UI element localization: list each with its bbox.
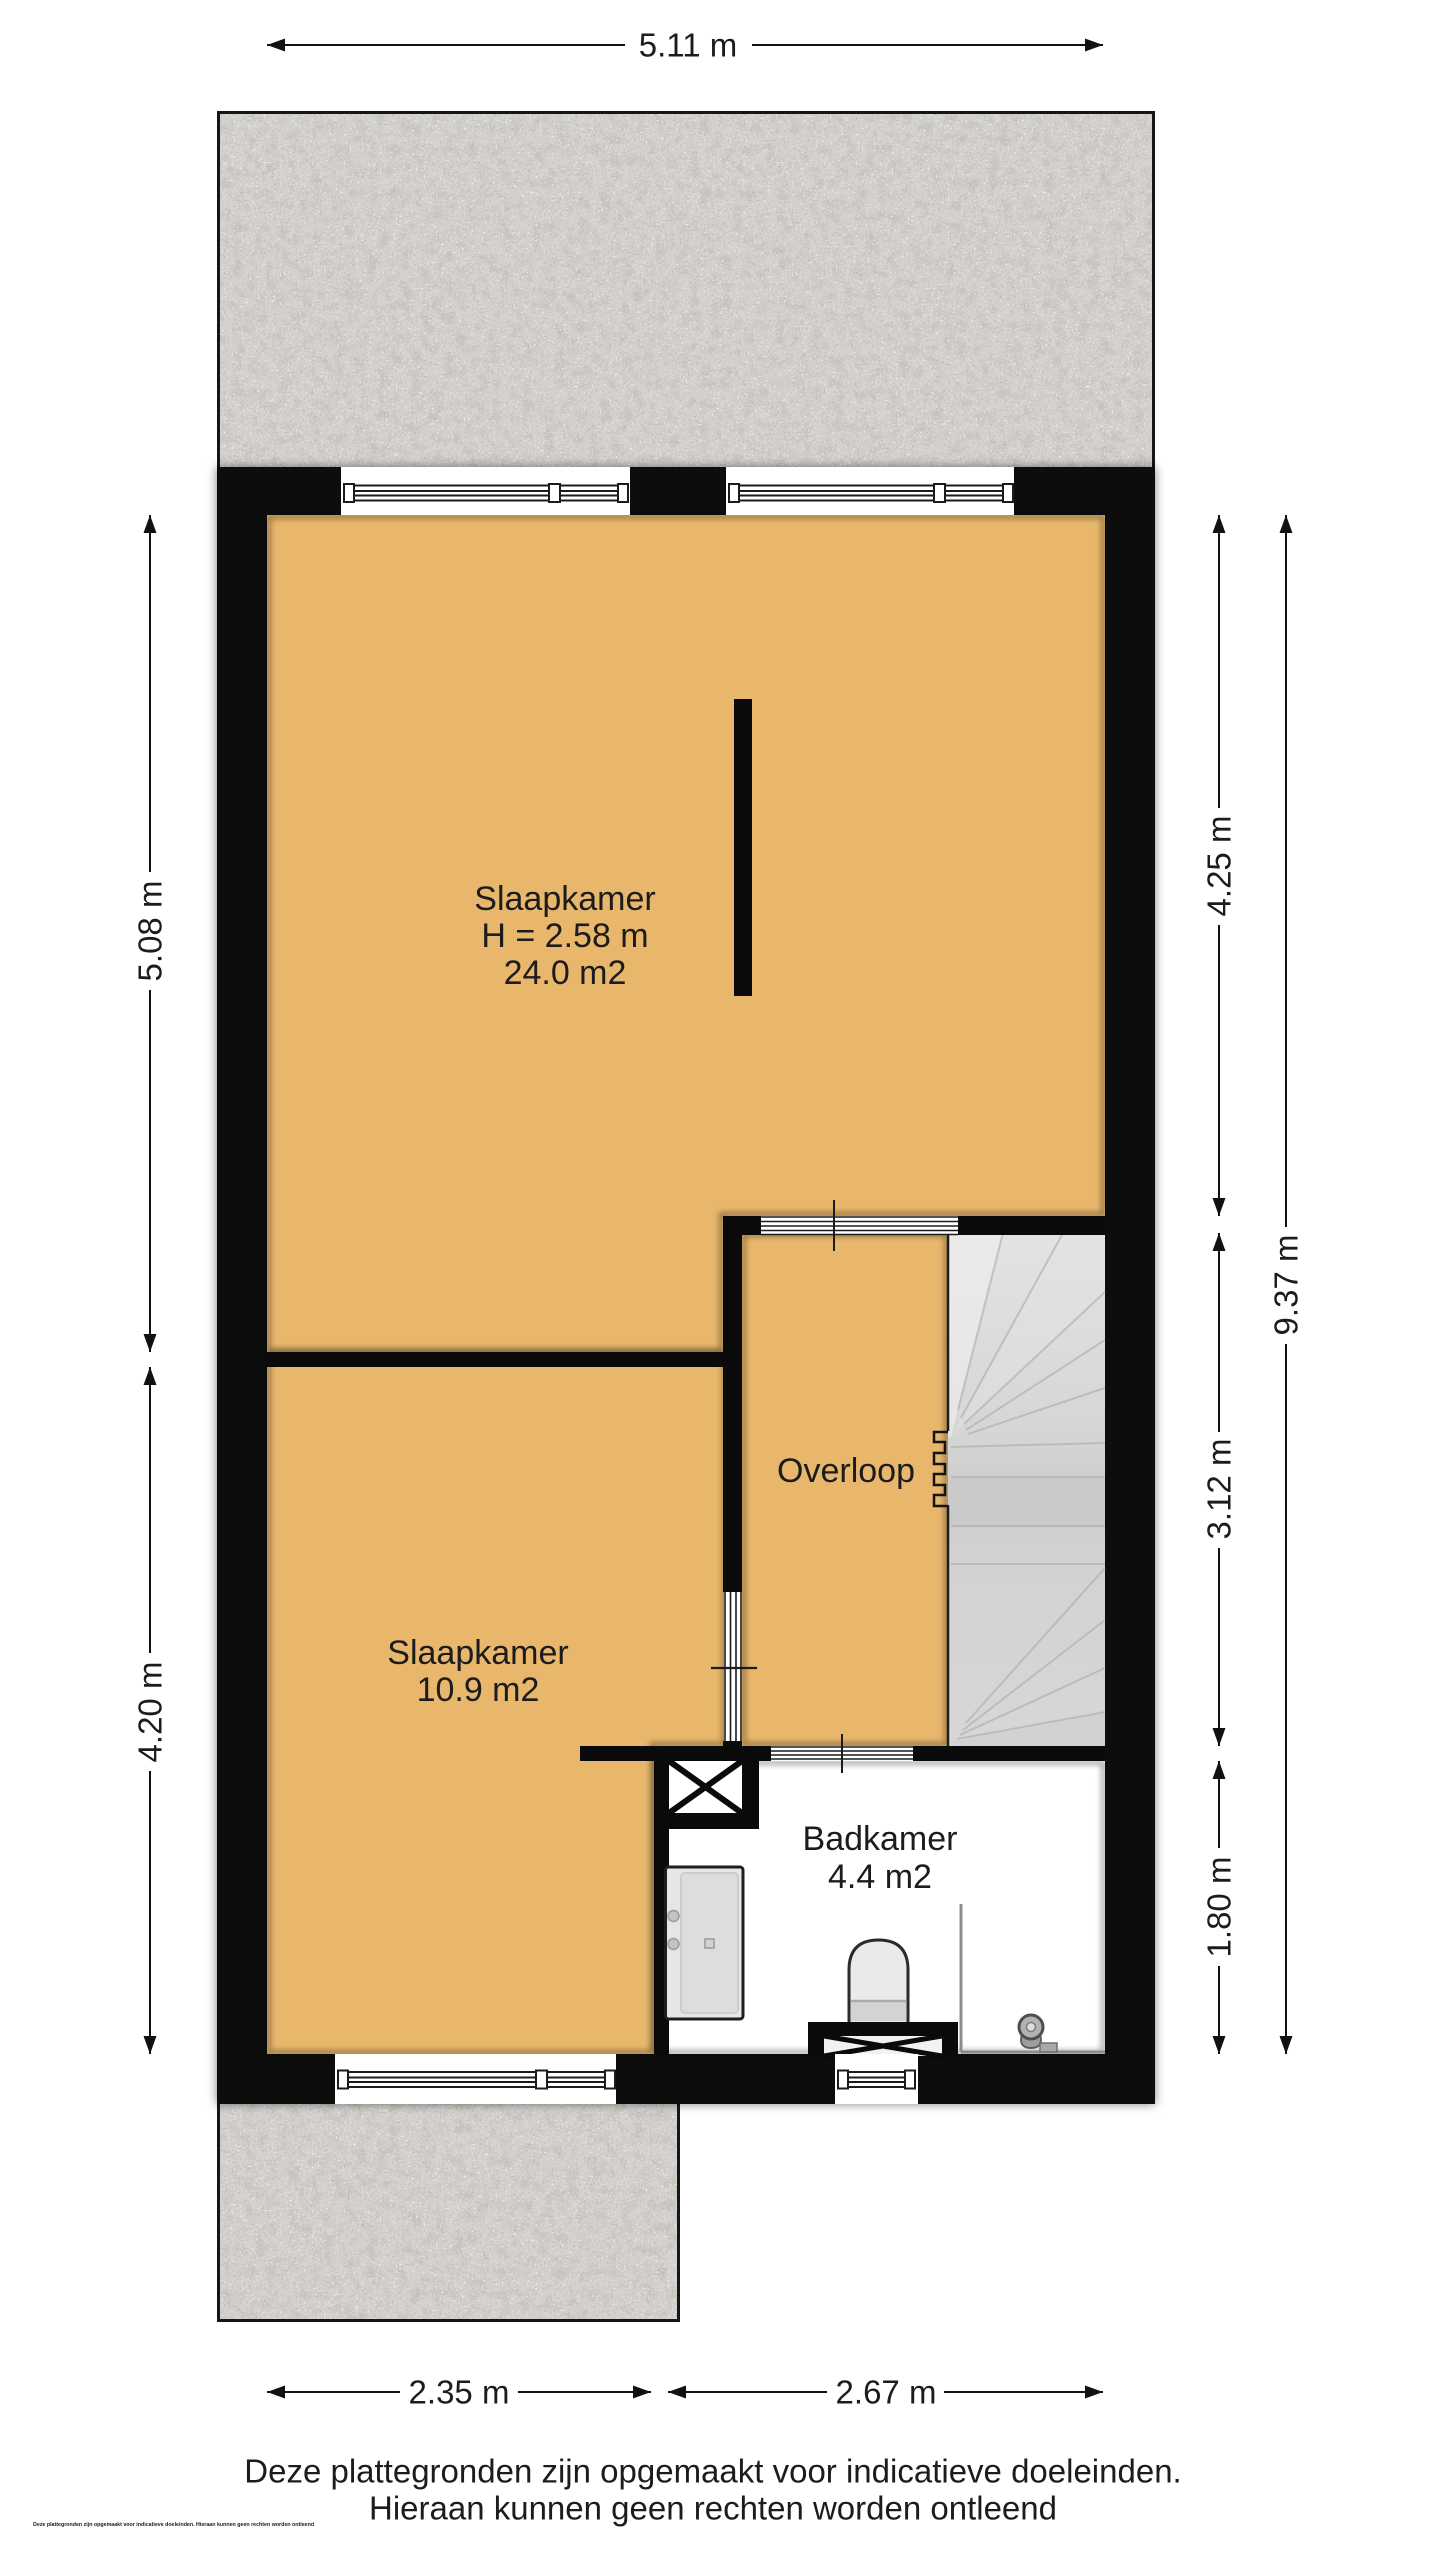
svg-text:5.08 m: 5.08 m	[132, 881, 169, 982]
svg-text:4.4 m2: 4.4 m2	[828, 1858, 932, 1896]
svg-text:Overloop: Overloop	[777, 1452, 915, 1490]
svg-text:H = 2.58 m: H = 2.58 m	[481, 917, 648, 955]
svg-text:4.25 m: 4.25 m	[1201, 816, 1238, 917]
svg-text:3.12 m: 3.12 m	[1201, 1439, 1238, 1540]
svg-text:5.11 m: 5.11 m	[639, 27, 737, 64]
svg-text:Slaapkamer: Slaapkamer	[387, 1634, 568, 1672]
svg-text:Deze plattegronden zijn opgema: Deze plattegronden zijn opgemaakt voor i…	[33, 2522, 314, 2528]
svg-text:2.67 m: 2.67 m	[836, 2374, 937, 2411]
svg-text:2.35 m: 2.35 m	[409, 2374, 510, 2411]
svg-text:Badkamer: Badkamer	[803, 1820, 958, 1858]
svg-text:4.20 m: 4.20 m	[132, 1662, 169, 1763]
svg-text:10.9 m2: 10.9 m2	[417, 1671, 540, 1709]
svg-text:24.0 m2: 24.0 m2	[504, 954, 627, 992]
svg-text:1.80 m: 1.80 m	[1201, 1857, 1238, 1958]
svg-text:Deze plattegronden zijn opgema: Deze plattegronden zijn opgemaakt voor i…	[244, 2453, 1181, 2490]
svg-text:Slaapkamer: Slaapkamer	[474, 880, 655, 918]
svg-text:Hieraan kunnen geen rechten wo: Hieraan kunnen geen rechten worden ontle…	[369, 2490, 1057, 2527]
svg-text:9.37 m: 9.37 m	[1268, 1235, 1305, 1336]
